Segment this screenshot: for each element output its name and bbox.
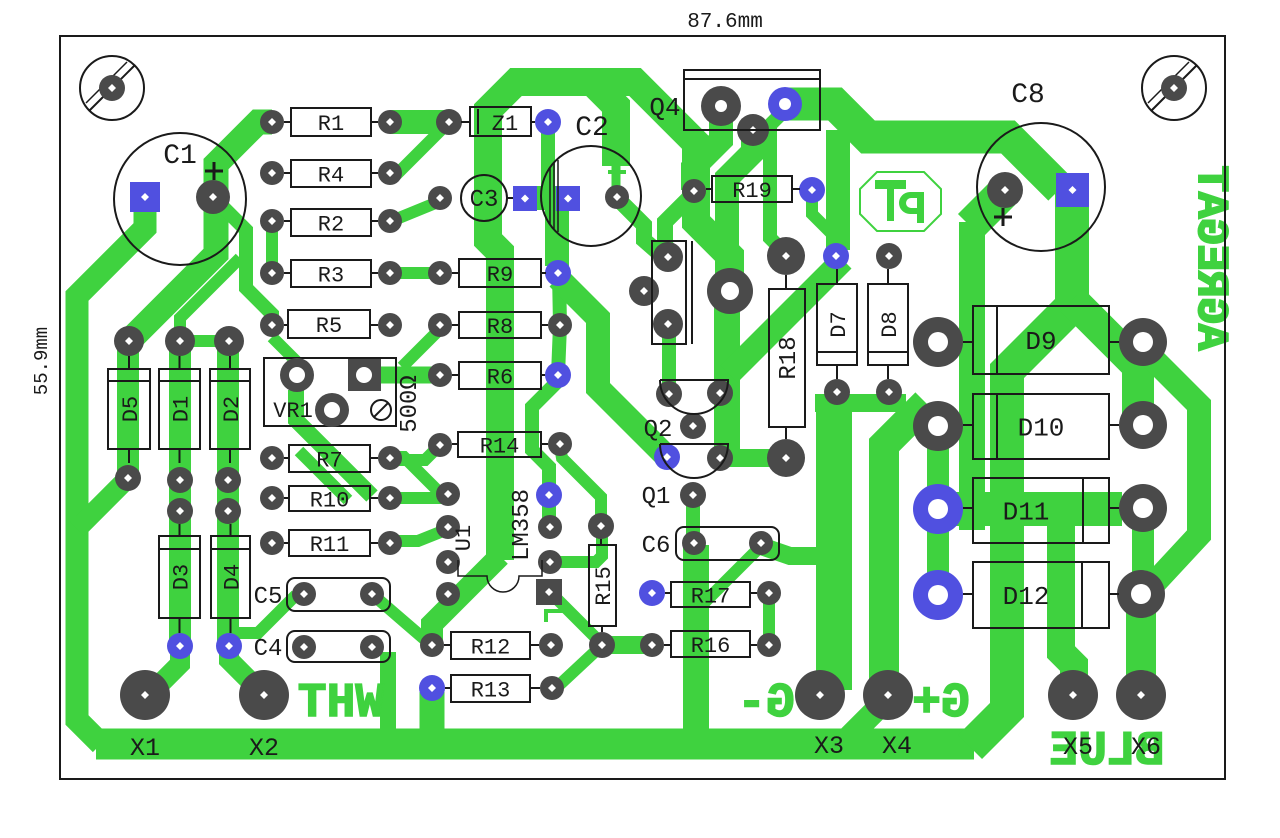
svg-text:C3: C3: [470, 187, 499, 214]
svg-text:D4: D4: [221, 564, 246, 590]
svg-text:C5: C5: [254, 584, 283, 611]
svg-text:X1: X1: [130, 734, 160, 763]
svg-text:C2: C2: [575, 113, 609, 144]
svg-text:R18: R18: [776, 336, 803, 379]
svg-text:R5: R5: [316, 314, 342, 339]
svg-text:D7: D7: [827, 311, 852, 337]
svg-text:D10: D10: [1018, 414, 1065, 444]
svg-text:LM358: LM358: [509, 489, 536, 561]
svg-text:Q2: Q2: [644, 417, 673, 444]
svg-text:87.6mm: 87.6mm: [687, 11, 763, 34]
svg-text:R13: R13: [471, 679, 511, 704]
svg-text:G-: G-: [737, 677, 795, 731]
svg-text:R19: R19: [732, 179, 772, 204]
svg-text:Q1: Q1: [642, 484, 671, 511]
svg-text:55.9mm: 55.9mm: [31, 327, 53, 395]
svg-text:R14: R14: [480, 435, 520, 460]
svg-text:R12: R12: [471, 636, 511, 661]
svg-text:X2: X2: [249, 734, 279, 763]
svg-text:D5: D5: [119, 396, 144, 422]
svg-text:R15: R15: [592, 566, 617, 606]
svg-text:D3: D3: [170, 564, 195, 590]
svg-text:THW: THW: [298, 677, 385, 731]
svg-text:R11: R11: [310, 533, 350, 558]
svg-text:D1: D1: [170, 396, 195, 422]
svg-text:R7: R7: [316, 449, 342, 474]
svg-text:G+: G+: [912, 677, 970, 731]
svg-text:500Ω: 500Ω: [397, 375, 424, 433]
svg-text:U1: U1: [452, 525, 477, 551]
svg-text:D9: D9: [1025, 327, 1056, 357]
svg-text:Z1: Z1: [492, 112, 518, 137]
svg-text:X3: X3: [814, 732, 844, 761]
svg-text:X6: X6: [1131, 733, 1161, 762]
svg-text:R1: R1: [318, 112, 344, 137]
svg-text:R8: R8: [487, 315, 513, 340]
svg-text:D11: D11: [1003, 498, 1050, 528]
svg-text:D8: D8: [878, 311, 903, 337]
svg-text:R9: R9: [487, 263, 513, 288]
svg-text:X4: X4: [882, 732, 912, 761]
svg-text:R17: R17: [691, 585, 731, 610]
svg-text:AGREGAT: AGREGAT: [1185, 166, 1235, 351]
svg-text:R10: R10: [310, 489, 350, 514]
svg-text:R6: R6: [487, 366, 513, 391]
svg-text:D2: D2: [220, 396, 245, 422]
svg-text:R16: R16: [691, 634, 731, 659]
svg-text:D12: D12: [1003, 582, 1050, 612]
svg-text:Q4: Q4: [649, 93, 680, 123]
svg-text:R4: R4: [318, 164, 344, 189]
svg-text:X5: X5: [1063, 733, 1093, 762]
svg-text:C8: C8: [1011, 80, 1045, 111]
svg-text:R2: R2: [318, 213, 344, 238]
svg-text:VR1: VR1: [273, 399, 313, 424]
svg-text:C1: C1: [163, 141, 197, 172]
svg-text:R3: R3: [318, 264, 344, 289]
svg-text:C6: C6: [642, 533, 671, 560]
svg-text:C4: C4: [254, 636, 283, 663]
